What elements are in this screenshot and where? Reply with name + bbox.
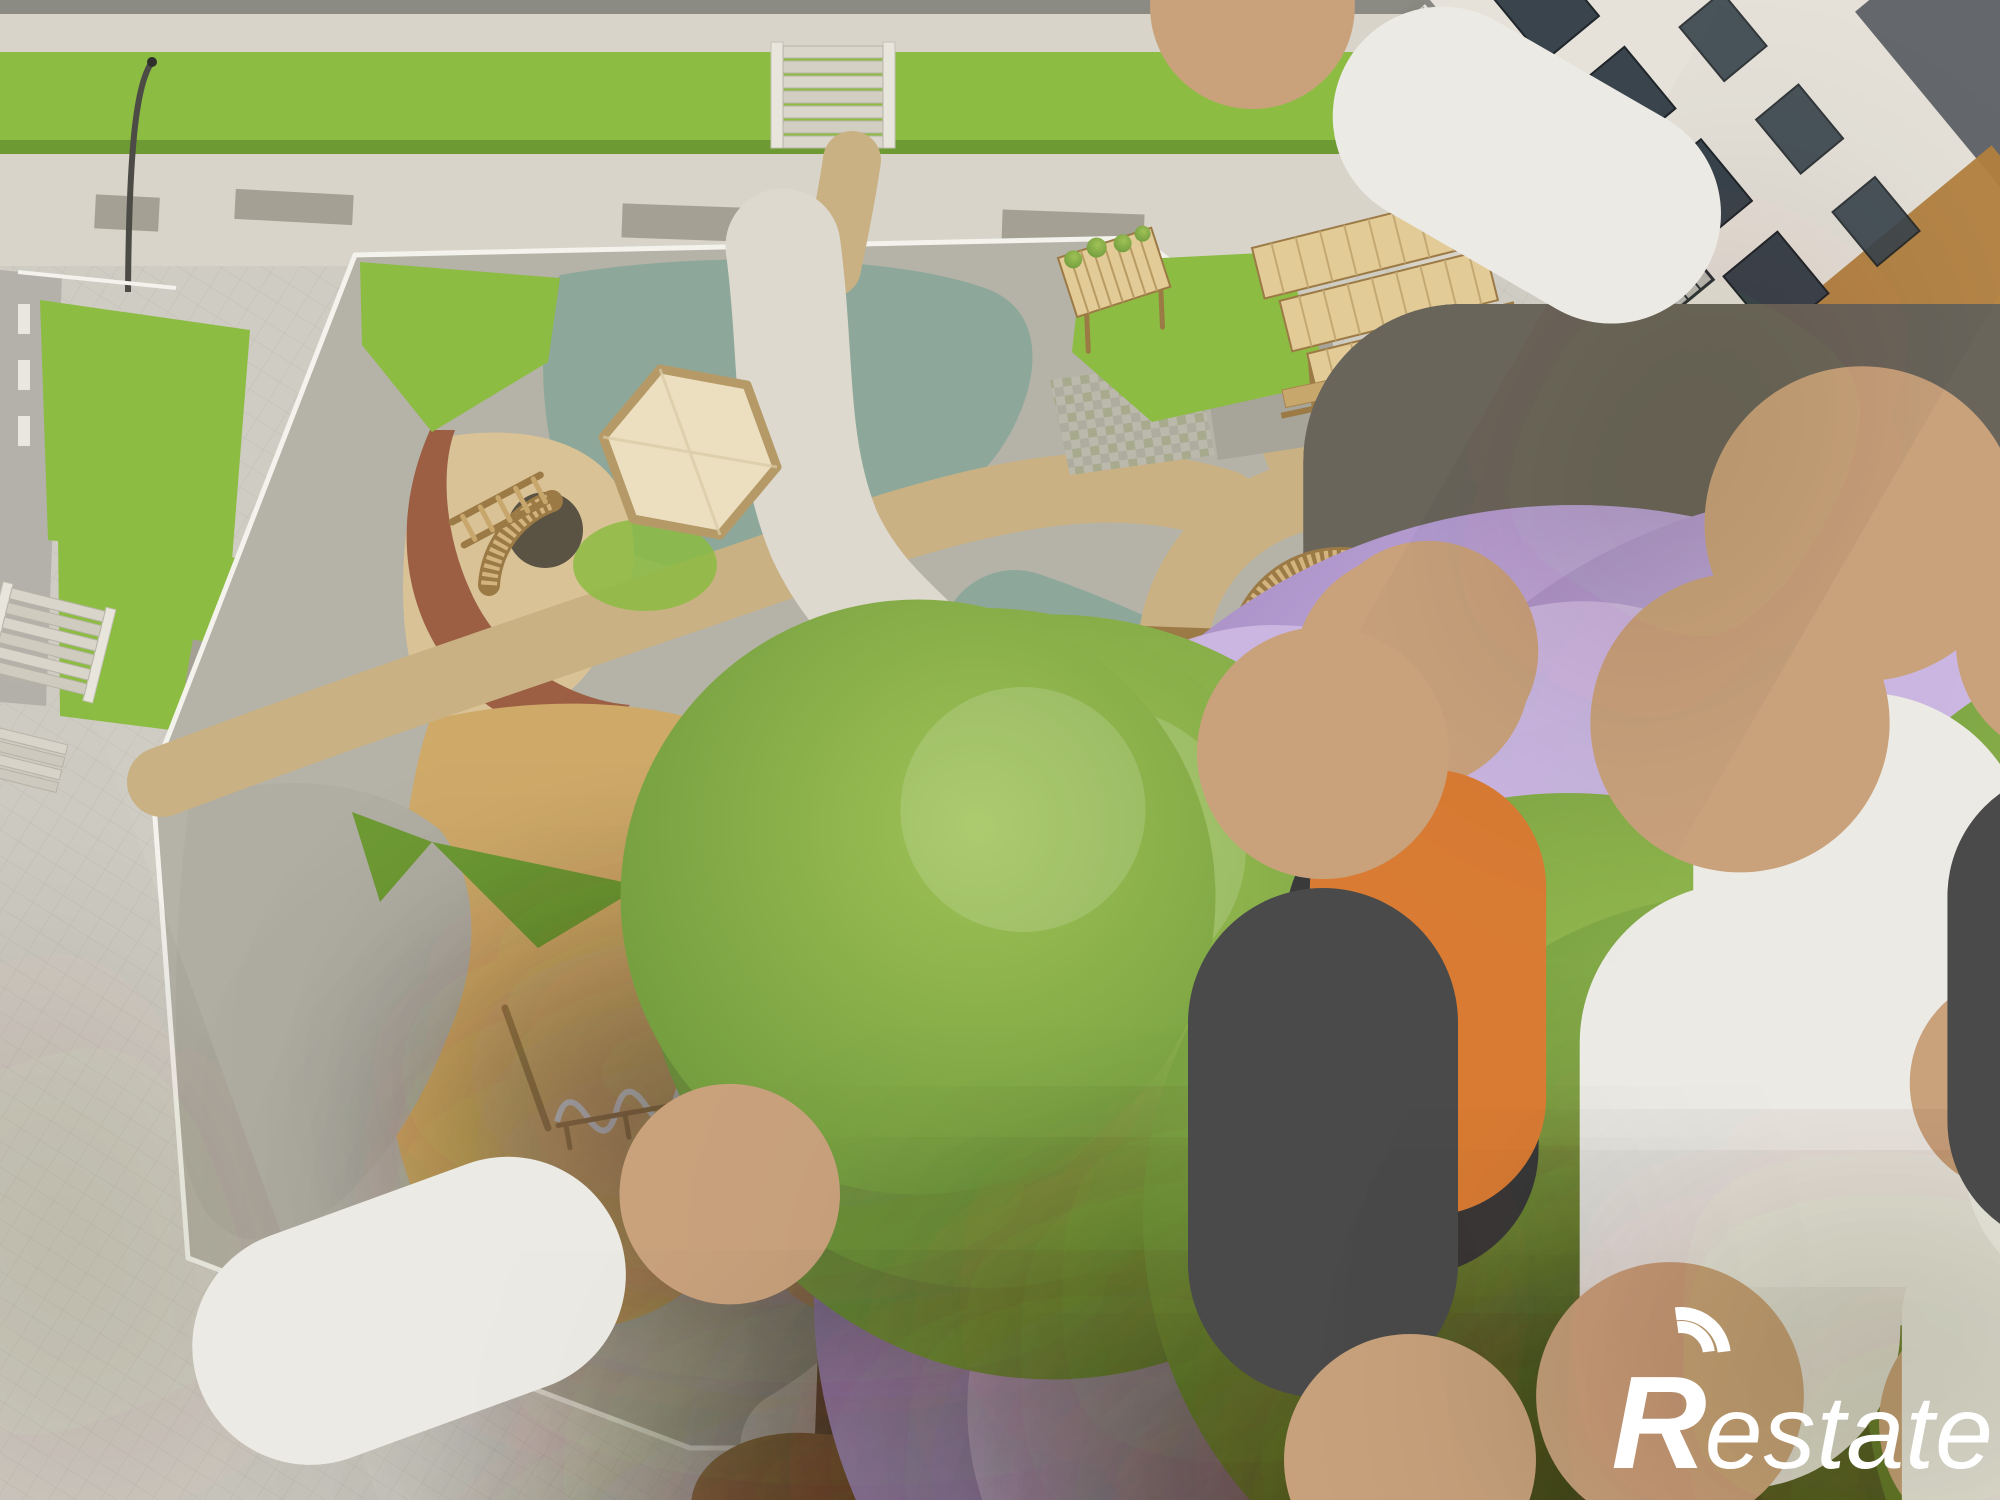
top-hedge <box>0 140 1460 154</box>
watermark-text: estate <box>1705 1374 1994 1493</box>
courtyard-render: R estate <box>0 0 2000 1500</box>
stairs-top <box>771 42 895 148</box>
watermark: R estate <box>1611 1347 1994 1498</box>
road-marking <box>18 360 30 390</box>
accent-paver <box>234 189 353 225</box>
lamp-head <box>147 57 157 67</box>
left-lawn <box>40 300 250 560</box>
road-marking <box>18 416 30 446</box>
watermark-logo: R <box>1611 1347 1702 1498</box>
courtyard-scene <box>0 0 2000 1500</box>
road-marking <box>18 304 30 334</box>
